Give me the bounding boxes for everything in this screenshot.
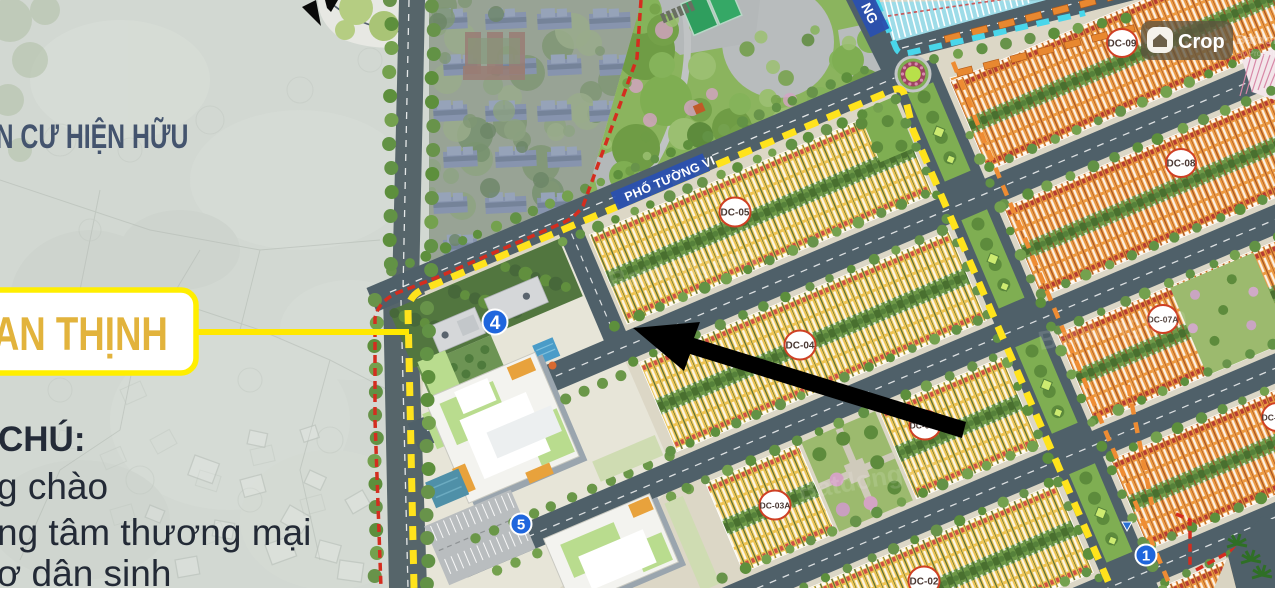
svg-text:g chào: g chào (0, 466, 108, 507)
svg-text:DC-09: DC-09 (1108, 38, 1137, 49)
svg-text:ng tâm thương mại: ng tâm thương mại (0, 512, 311, 553)
svg-text:5: 5 (517, 516, 525, 533)
svg-text:1: 1 (1142, 547, 1150, 564)
svg-text:DC-05: DC-05 (721, 207, 750, 218)
svg-text:N CƯ HIỆN HỮU: N CƯ HIỆN HỮU (0, 117, 188, 156)
svg-text:Batdongsan: Batdongsan (1236, 32, 1275, 47)
svg-text:4: 4 (490, 313, 501, 334)
svg-text:CHÚ:: CHÚ: (0, 419, 85, 459)
svg-text:by PropertyGuru: by PropertyGuru (1238, 49, 1275, 58)
svg-text:DC-07B: DC-07B (1262, 412, 1275, 422)
svg-text:DC-03A: DC-03A (760, 500, 791, 510)
svg-text:DC-08: DC-08 (1167, 158, 1196, 169)
svg-text:AN THỊNH: AN THỊNH (0, 308, 168, 360)
svg-text:DC-02: DC-02 (910, 576, 939, 587)
svg-text:Crop: Crop (1178, 31, 1225, 53)
svg-text:DC-04: DC-04 (786, 340, 815, 351)
svg-text:ợ dân sinh: ợ dân sinh (0, 553, 171, 588)
